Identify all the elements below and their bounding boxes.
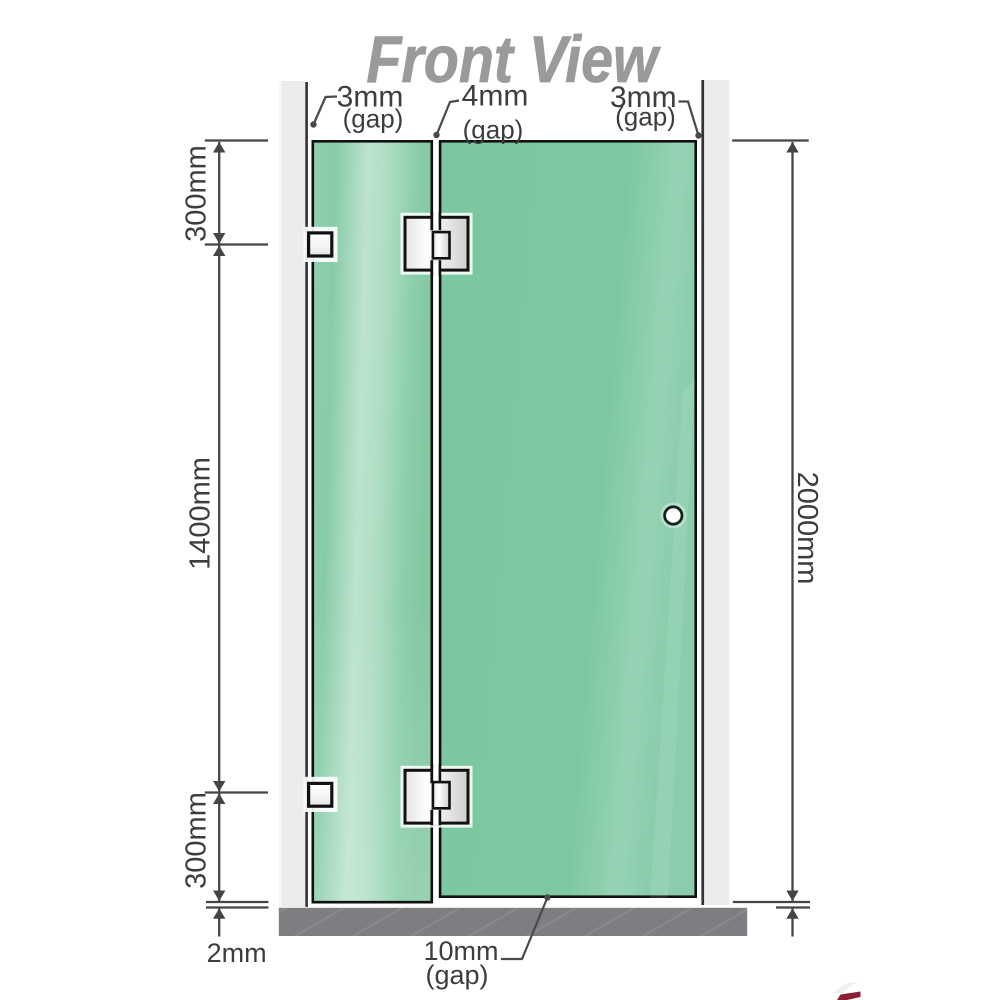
svg-text:(gap): (gap)	[463, 115, 524, 145]
svg-text:(gap): (gap)	[425, 960, 488, 990]
svg-text:300mm: 300mm	[181, 145, 213, 242]
svg-text:2mm: 2mm	[207, 938, 267, 968]
svg-text:4mm: 4mm	[462, 80, 529, 113]
svg-text:2000mm: 2000mm	[791, 472, 823, 585]
svg-text:1400mm: 1400mm	[185, 457, 217, 570]
svg-text:(gap): (gap)	[343, 104, 404, 134]
svg-text:(gap): (gap)	[615, 102, 676, 132]
svg-text:300mm: 300mm	[180, 792, 212, 889]
